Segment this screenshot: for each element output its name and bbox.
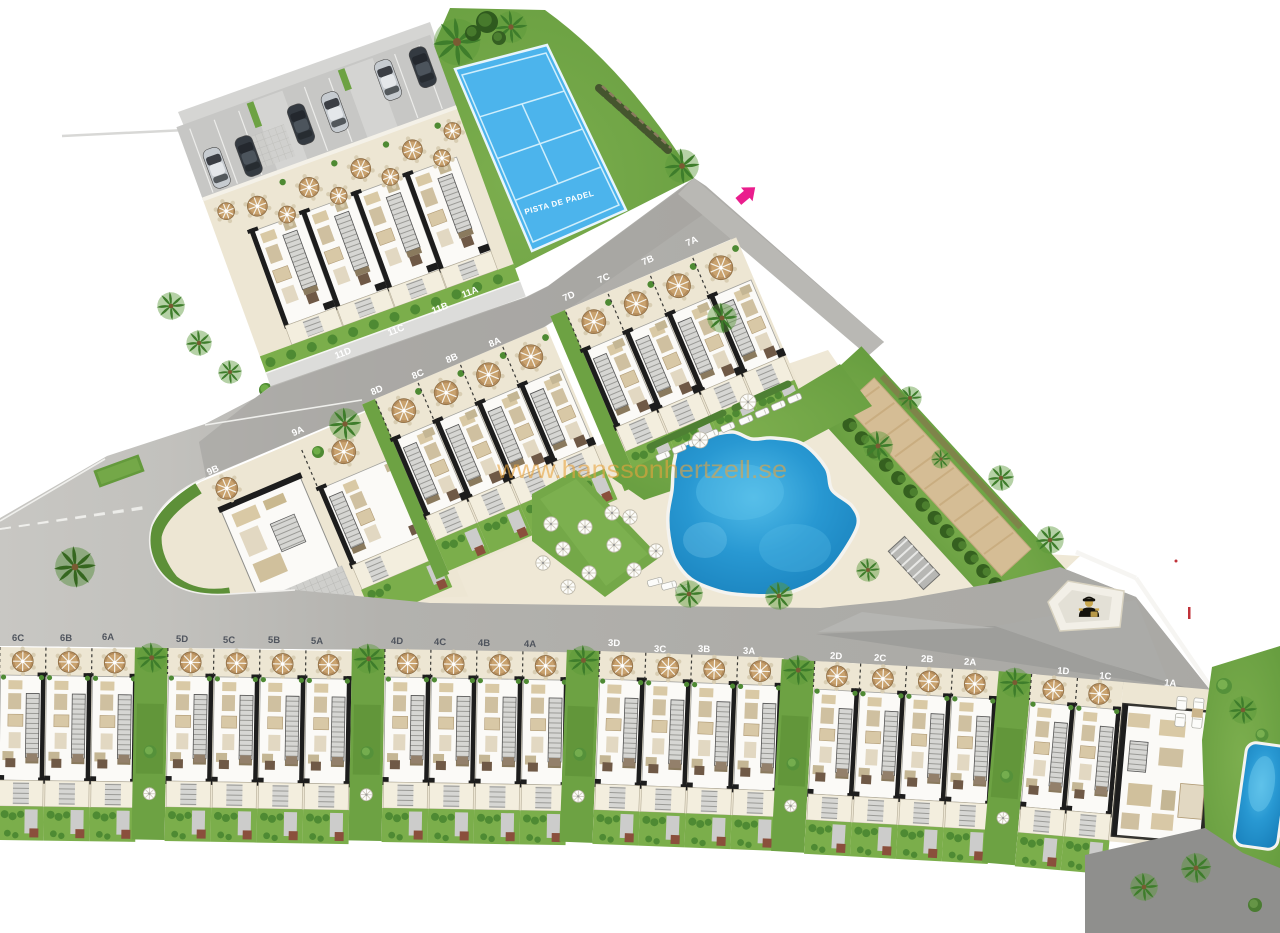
svg-text:4C: 4C — [434, 637, 446, 648]
svg-text:2C: 2C — [874, 653, 887, 665]
svg-text:3D: 3D — [608, 638, 621, 649]
svg-text:2A: 2A — [964, 657, 977, 669]
svg-text:2B: 2B — [921, 654, 934, 666]
svg-text:5D: 5D — [176, 634, 188, 645]
svg-text:5C: 5C — [223, 635, 235, 646]
svg-text:www.hanssonhertzell.se: www.hanssonhertzell.se — [496, 456, 787, 484]
svg-text:5B: 5B — [268, 635, 280, 646]
svg-text:6B: 6B — [60, 633, 72, 644]
svg-text:3A: 3A — [743, 646, 756, 657]
svg-text:3C: 3C — [654, 644, 667, 655]
svg-text:1A: 1A — [1164, 678, 1177, 690]
svg-text:4B: 4B — [478, 638, 490, 649]
svg-text:4D: 4D — [391, 636, 403, 647]
svg-text:1C: 1C — [1099, 671, 1112, 683]
svg-text:3B: 3B — [698, 644, 711, 655]
svg-text:2D: 2D — [830, 651, 843, 663]
svg-text:6C: 6C — [12, 633, 24, 644]
svg-text:1D: 1D — [1057, 666, 1070, 678]
svg-text:6A: 6A — [102, 632, 114, 643]
svg-text:4A: 4A — [524, 639, 536, 650]
svg-text:5A: 5A — [311, 636, 323, 647]
